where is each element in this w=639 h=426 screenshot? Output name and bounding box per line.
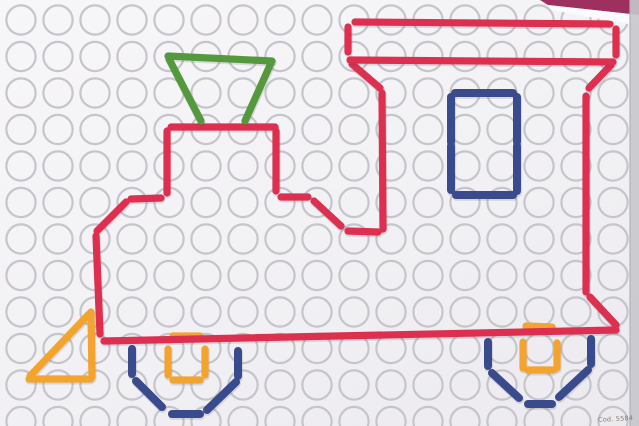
locomotive-body-outline-segment: [314, 201, 341, 226]
peg-hole-circle: [598, 224, 627, 253]
peg-hole-circle: [598, 78, 627, 107]
peg-hole-circle: [413, 115, 442, 144]
peg-hole-circle: [339, 151, 368, 180]
peg-hole-circle: [43, 42, 72, 71]
rear-wheel-hub-segment: [526, 326, 552, 327]
peg-hole-circle: [561, 334, 590, 363]
peg-hole-circle: [117, 151, 146, 180]
peg-hole-circle: [228, 5, 257, 34]
peg-hole-circle: [376, 297, 405, 326]
peg-hole-circle: [413, 188, 442, 217]
peg-hole-circle: [80, 42, 109, 71]
peg-hole-circle: [524, 297, 553, 326]
peg-hole-circle: [80, 5, 109, 34]
peg-hole-circle: [117, 407, 146, 426]
chimney-segment: [245, 63, 271, 121]
locomotive-body-outline-segment: [96, 236, 100, 334]
peg-hole-circle: [487, 407, 516, 426]
peg-hole-circle: [154, 261, 183, 290]
pegboard-photo: Cod. 5584: [0, 0, 639, 426]
peg-hole-circle: [265, 407, 294, 426]
peg-hole-circle: [302, 297, 331, 326]
peg-hole-circle: [43, 78, 72, 107]
peg-hole-circle: [376, 370, 405, 399]
peg-hole-circle: [339, 297, 368, 326]
peg-hole-circle: [228, 188, 257, 217]
peg-hole-circle: [450, 297, 479, 326]
peg-hole-circle: [191, 151, 220, 180]
peg-hole-grid: [6, 5, 627, 426]
peg-hole-circle: [413, 407, 442, 426]
board-edge-right-band: [630, 0, 639, 426]
peg-hole-circle: [376, 261, 405, 290]
peg-hole-circle: [6, 115, 35, 144]
peg-hole-circle: [265, 297, 294, 326]
peg-hole-circle: [524, 151, 553, 180]
locomotive-body-outline-segment: [348, 231, 378, 232]
peg-hole-circle: [191, 261, 220, 290]
peg-hole-circle: [80, 115, 109, 144]
peg-hole-circle: [524, 334, 553, 363]
peg-hole-circle: [487, 297, 516, 326]
peg-hole-circle: [450, 224, 479, 253]
peg-hole-circle: [6, 188, 35, 217]
peg-hole-circle: [117, 78, 146, 107]
peg-hole-circle: [43, 407, 72, 426]
peg-hole-circle: [154, 224, 183, 253]
peg-hole-circle: [302, 115, 331, 144]
peg-hole-circle: [487, 261, 516, 290]
peg-hole-circle: [302, 370, 331, 399]
peg-hole-circle: [43, 224, 72, 253]
peg-hole-circle: [450, 261, 479, 290]
peg-hole-circle: [524, 261, 553, 290]
peg-hole-circle: [117, 224, 146, 253]
peg-hole-circle: [191, 5, 220, 34]
peg-hole-circle: [117, 297, 146, 326]
peg-hole-circle: [117, 42, 146, 71]
peg-hole-circle: [487, 151, 516, 180]
cowcatcher-segment: [91, 312, 92, 377]
peg-hole-circle: [302, 224, 331, 253]
peg-hole-circle: [6, 334, 35, 363]
peg-hole-circle: [154, 5, 183, 34]
peg-hole-circle: [450, 42, 479, 71]
peg-hole-circle: [43, 188, 72, 217]
peg-hole-circle: [339, 261, 368, 290]
peg-hole-circle: [561, 407, 590, 426]
peg-hole-circle: [80, 188, 109, 217]
locomotive-body-outline-segment: [131, 198, 161, 199]
peg-hole-circle: [413, 78, 442, 107]
peg-hole-circle: [6, 297, 35, 326]
peg-hole-circle: [228, 261, 257, 290]
peg-hole-circle: [6, 151, 35, 180]
peg-hole-circle: [191, 297, 220, 326]
peg-hole-circle: [43, 5, 72, 34]
peg-hole-circle: [228, 407, 257, 426]
peg-hole-circle: [191, 224, 220, 253]
peg-hole-circle: [302, 78, 331, 107]
peg-hole-circle: [339, 407, 368, 426]
peg-hole-circle: [524, 78, 553, 107]
peg-hole-circle: [6, 261, 35, 290]
peg-hole-circle: [598, 188, 627, 217]
peg-hole-circle: [265, 78, 294, 107]
peg-hole-circle: [598, 151, 627, 180]
peg-hole-circle: [80, 78, 109, 107]
peg-hole-circle: [6, 5, 35, 34]
peg-hole-circle: [117, 261, 146, 290]
peg-hole-circle: [561, 297, 590, 326]
peg-hole-circle: [265, 370, 294, 399]
peg-hole-circle: [339, 78, 368, 107]
peg-hole-circle: [487, 115, 516, 144]
peg-hole-circle: [43, 261, 72, 290]
peg-hole-circle: [6, 224, 35, 253]
peg-hole-circle: [302, 5, 331, 34]
peg-hole-circle: [80, 151, 109, 180]
peg-hole-circle: [339, 370, 368, 399]
peg-hole-circle: [6, 78, 35, 107]
peg-hole-circle: [376, 42, 405, 71]
peg-hole-circle: [598, 334, 627, 363]
peg-hole-circle: [413, 297, 442, 326]
chimney-segment: [168, 56, 272, 61]
peg-hole-circle: [265, 261, 294, 290]
peg-hole-circle: [413, 370, 442, 399]
peg-hole-circle: [191, 188, 220, 217]
cab-roof-segment: [355, 22, 610, 24]
peg-hole-circle: [80, 407, 109, 426]
peg-hole-circle: [524, 115, 553, 144]
peg-hole-circle: [487, 224, 516, 253]
peg-hole-circle: [302, 42, 331, 71]
rear-wheel-segment: [559, 370, 588, 397]
locomotive-body-outline-segment: [382, 93, 383, 229]
peg-hole-circle: [524, 224, 553, 253]
peg-hole-circle: [302, 151, 331, 180]
lacing-train-scene: [0, 0, 639, 426]
peg-hole-circle: [598, 115, 627, 144]
peg-hole-circle: [6, 407, 35, 426]
peg-hole-circle: [598, 370, 627, 399]
peg-hole-circle: [43, 297, 72, 326]
train-figure: [29, 22, 617, 415]
peg-hole-circle: [339, 188, 368, 217]
peg-hole-circle: [450, 370, 479, 399]
peg-hole-circle: [117, 115, 146, 144]
peg-hole-circle: [265, 5, 294, 34]
peg-hole-circle: [228, 224, 257, 253]
peg-hole-circle: [413, 42, 442, 71]
peg-hole-circle: [43, 370, 72, 399]
peg-hole-circle: [524, 188, 553, 217]
peg-hole-circle: [302, 261, 331, 290]
peg-hole-circle: [117, 5, 146, 34]
peg-hole-circle: [228, 151, 257, 180]
peg-hole-circle: [339, 115, 368, 144]
peg-hole-circle: [302, 407, 331, 426]
peg-hole-circle: [265, 224, 294, 253]
peg-hole-circle: [154, 297, 183, 326]
cab-roof-segment: [350, 60, 613, 62]
peg-hole-circle: [413, 261, 442, 290]
peg-hole-circle: [413, 224, 442, 253]
peg-hole-circle: [6, 42, 35, 71]
peg-hole-circle: [376, 407, 405, 426]
peg-hole-circle: [43, 115, 72, 144]
peg-hole-circle: [228, 297, 257, 326]
peg-hole-circle: [450, 407, 479, 426]
peg-hole-circle: [43, 151, 72, 180]
peg-hole-circle: [598, 261, 627, 290]
peg-hole-circle: [413, 151, 442, 180]
